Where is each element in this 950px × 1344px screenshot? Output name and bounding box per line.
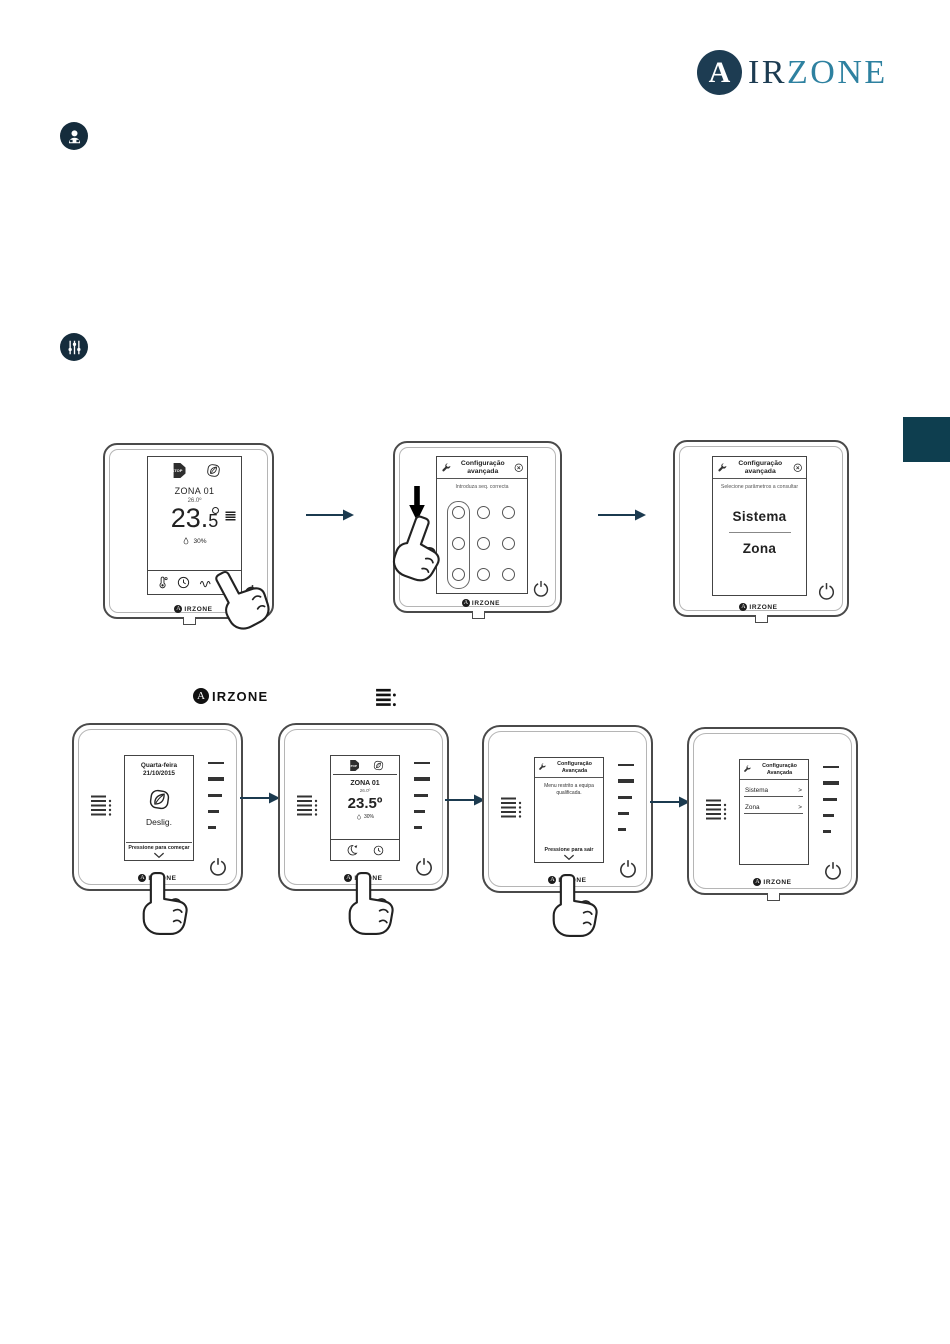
keypad-dot[interactable] (502, 568, 515, 581)
eco-leaf-icon (148, 788, 171, 811)
power-button[interactable] (414, 856, 434, 876)
clock-icon (373, 845, 384, 856)
list-menu-icon (89, 794, 115, 822)
pointing-hand-icon (135, 869, 193, 939)
clock-icon[interactable] (177, 576, 190, 589)
think-off-screen: Quarta-feira 21/10/2015 Deslig. Pression… (124, 755, 194, 861)
zone-name: ZONA 01 (331, 780, 399, 787)
keypad-dot[interactable] (502, 537, 515, 550)
think-menu-screen: Configuração Avançada Sistema > Zona > (739, 759, 809, 865)
menu-item-zona[interactable]: Zona > (744, 797, 803, 814)
keypad-dot[interactable] (477, 537, 490, 550)
power-button[interactable] (532, 579, 550, 597)
humidity-readout: 30% (331, 814, 399, 820)
device-state: Deslig. (125, 817, 193, 827)
airzone-button-label: A IRZONE (193, 688, 268, 704)
keypad-dot[interactable] (452, 506, 465, 519)
close-icon[interactable] (793, 463, 803, 473)
screen-title: Configuração avançada (728, 460, 793, 476)
date: 21/10/2015 (125, 770, 193, 778)
keypad-dot[interactable] (452, 537, 465, 550)
technician-icon (60, 122, 88, 150)
power-button[interactable] (618, 858, 638, 878)
chevron-right-icon: > (798, 804, 802, 811)
humidity-drop-icon (356, 814, 362, 820)
section-side-tab (903, 417, 950, 462)
eco-leaf-icon[interactable] (206, 463, 221, 478)
keypad-dot[interactable] (477, 568, 490, 581)
chevron-down-icon (153, 852, 165, 858)
flow-arrow (240, 791, 280, 805)
option-divider (729, 532, 791, 533)
weekday: Quarta-feira (125, 762, 193, 770)
bottom-icon-bar (331, 839, 399, 860)
airzone-button[interactable]: A IRZONE (689, 878, 856, 886)
wrench-icon (717, 463, 728, 474)
stop-mode-icon[interactable]: STOP (169, 463, 186, 478)
flow-arrow (306, 508, 354, 522)
side-buttons[interactable] (414, 762, 430, 829)
side-buttons[interactable] (618, 764, 634, 831)
chevron-down-icon (563, 854, 575, 860)
wrench-icon (743, 765, 752, 774)
power-button[interactable] (823, 860, 843, 880)
screen-title: Configuração Avançada (549, 761, 600, 775)
brand-ir: IR (748, 54, 787, 91)
option-sistema[interactable]: Sistema (713, 509, 806, 524)
screen-title: Configuração avançada (452, 460, 514, 476)
keypad-dot[interactable] (502, 506, 515, 519)
humidity-readout: 30% (148, 537, 241, 545)
room-temperature: 23.5º (331, 796, 399, 811)
manual-page: A IRZONE STOP ZONA 01 26.0º (0, 0, 950, 1344)
airzone-logo-a-icon: A (697, 50, 742, 95)
think-main-screen: STOP ZONA 01 26.0º 23.5º 30% (330, 755, 400, 861)
hint-text: Pressione para sair (535, 847, 603, 853)
list-menu-icon (295, 794, 321, 822)
keypad-dot[interactable] (452, 568, 465, 581)
close-icon[interactable] (514, 463, 524, 473)
thermometer-icon[interactable] (156, 576, 169, 589)
wrench-icon (538, 763, 547, 772)
brand-zone: ZONE (787, 54, 888, 91)
humidity-drop-icon (182, 537, 190, 545)
restricted-message: Menu restrito a equipa qualificada. (535, 783, 603, 798)
power-button[interactable] (208, 856, 228, 876)
side-buttons[interactable] (208, 762, 224, 829)
zone-name: ZONA 01 (148, 486, 241, 496)
option-zona[interactable]: Zona (713, 541, 806, 556)
think-thermostat-main: STOP ZONA 01 26.0º 23.5º 30% A IR (278, 723, 449, 891)
think-restricted-screen: Configuração Avançada Menu restrito a eq… (534, 757, 604, 863)
screen-subtitle: Introduza seq. correcta (437, 484, 527, 492)
blueface-thermostat-select: Configuração avançada Selecione parâmetr… (673, 440, 849, 617)
pointing-hand-icon (341, 869, 399, 939)
flow-arrow (598, 508, 646, 522)
stop-mode-icon: STOP (346, 760, 359, 771)
airzone-logo: A IRZONE (697, 50, 888, 95)
list-menu-icon (704, 798, 730, 826)
wrench-icon (441, 463, 452, 474)
device-brand-label: A IRZONE (712, 603, 805, 611)
flow-arrow (650, 795, 690, 809)
setpoint-temp: 26.0º (331, 788, 399, 793)
think-thermostat-menu: Configuração Avançada Sistema > Zona > A… (687, 727, 858, 895)
think-thermostat-restricted: Configuração Avançada Menu restrito a eq… (482, 725, 653, 893)
pointing-hand-icon (545, 871, 603, 941)
sleep-moon-icon (346, 844, 358, 856)
menu-item-sistema[interactable]: Sistema > (744, 780, 803, 797)
device-brand-label: A IRZONE (436, 599, 526, 607)
menu-button-icon (374, 686, 397, 709)
screen-title: Configuração Avançada (754, 763, 805, 777)
flow-arrow (445, 793, 485, 807)
menu-icon[interactable] (225, 508, 236, 526)
keypad-dot[interactable] (477, 506, 490, 519)
chevron-right-icon: > (798, 787, 802, 794)
power-button[interactable] (817, 581, 836, 600)
hint-text: Pressione para começar (126, 845, 192, 851)
side-buttons[interactable] (823, 766, 839, 833)
think-thermostat-off: Quarta-feira 21/10/2015 Deslig. Pression… (72, 723, 243, 891)
blueface-select-screen: Configuração avançada Selecione parâmetr… (712, 456, 807, 596)
list-menu-icon (499, 796, 525, 824)
eco-leaf-icon (373, 760, 384, 771)
screen-subtitle: Selecione parâmetros a consultar (713, 484, 806, 492)
sliders-icon (60, 333, 88, 361)
